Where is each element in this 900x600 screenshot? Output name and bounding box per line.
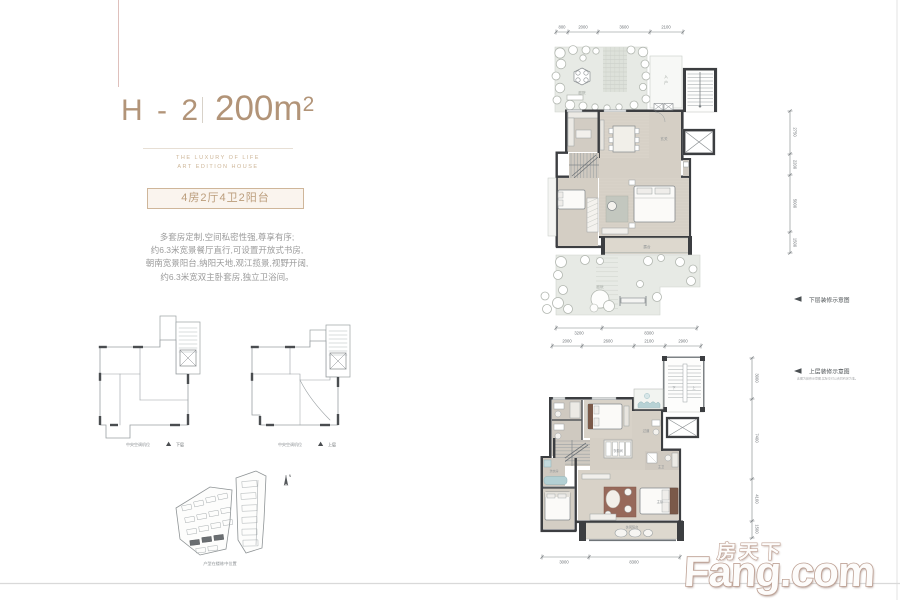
svg-text:2000: 2000: [562, 339, 572, 344]
svg-text:入: 入: [664, 74, 668, 79]
svg-text:3200: 3200: [574, 331, 584, 336]
svg-text:3600: 3600: [619, 25, 629, 30]
svg-text:主卧: 主卧: [657, 499, 664, 504]
svg-text:Fang.com: Fang.com: [683, 548, 876, 595]
svg-text:下层装修示意图: 下层装修示意图: [809, 296, 850, 304]
svg-text:中央空调机位: 中央空调机位: [126, 441, 150, 447]
svg-text:2000: 2000: [578, 25, 588, 30]
svg-text:1500: 1500: [755, 524, 760, 534]
svg-text:洗衣房: 洗衣房: [549, 468, 558, 473]
svg-text:7400: 7400: [755, 433, 760, 443]
svg-text:4100: 4100: [755, 494, 760, 504]
svg-text:庭院: 庭院: [596, 284, 604, 289]
svg-text:800: 800: [559, 25, 567, 30]
svg-text:1500: 1500: [793, 238, 798, 248]
svg-text:2200: 2200: [793, 160, 798, 170]
svg-text:2900: 2900: [678, 339, 688, 344]
svg-text:N: N: [289, 474, 292, 478]
svg-text:玄关: 玄关: [660, 136, 668, 141]
svg-text:2750: 2750: [793, 127, 798, 137]
svg-text:上层: 上层: [328, 441, 336, 447]
svg-text:8300: 8300: [644, 331, 654, 336]
svg-text:休闲阳台: 休闲阳台: [626, 525, 639, 530]
svg-text:2600: 2600: [603, 339, 613, 344]
svg-text:3000: 3000: [559, 560, 569, 565]
svg-text:3000: 3000: [755, 373, 760, 383]
svg-text:中央空调机位: 中央空调机位: [278, 441, 302, 447]
svg-text:衣帽间: 衣帽间: [613, 448, 623, 453]
svg-text:庭院: 庭院: [578, 90, 586, 95]
svg-text:户: 户: [664, 80, 668, 85]
svg-text:2100: 2100: [661, 25, 671, 30]
svg-text:露台: 露台: [643, 244, 651, 249]
svg-text:上层装修示意图: 上层装修示意图: [809, 367, 850, 375]
svg-text:过道: 过道: [643, 428, 650, 433]
svg-text:主卫: 主卫: [658, 464, 665, 469]
svg-text:户型在楼栋中位置: 户型在楼栋中位置: [203, 560, 237, 567]
svg-text:此图为装修示意图,实际交付以合同约定为准。: 此图为装修示意图,实际交付以合同约定为准。: [797, 376, 858, 381]
svg-text:下层: 下层: [176, 441, 184, 447]
svg-text:8300: 8300: [629, 560, 639, 565]
svg-text:5000: 5000: [793, 199, 798, 209]
svg-text:2100: 2100: [644, 339, 654, 344]
